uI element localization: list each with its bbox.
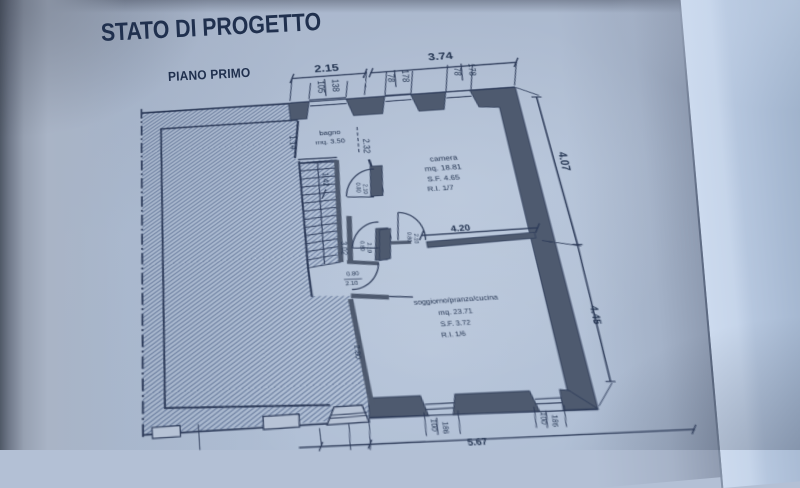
svg-text:2.32: 2.32 [361, 139, 373, 154]
svg-text:2.10: 2.10 [366, 243, 373, 254]
svg-text:100: 100 [538, 412, 548, 425]
svg-text:4.07: 4.07 [556, 152, 575, 171]
svg-text:0.80: 0.80 [354, 183, 362, 193]
svg-text:4.20: 4.20 [450, 223, 472, 234]
svg-text:mq. 18.81: mq. 18.81 [424, 164, 463, 174]
svg-text:138: 138 [330, 79, 342, 92]
svg-text:S.F. 4.65: S.F. 4.65 [427, 174, 461, 183]
svg-text:2.15: 2.15 [314, 63, 340, 75]
svg-text:mq. 23.71: mq. 23.71 [438, 308, 473, 317]
svg-text:178: 178 [466, 63, 478, 76]
svg-text:100: 100 [428, 419, 437, 432]
svg-text:S.F. 3.72: S.F. 3.72 [440, 320, 471, 329]
svg-text:1.42: 1.42 [320, 172, 330, 186]
svg-text:R.I. 1/7: R.I. 1/7 [427, 184, 455, 193]
svg-text:186: 186 [549, 414, 559, 427]
svg-text:178: 178 [400, 70, 411, 83]
svg-text:3.74: 3.74 [427, 51, 455, 63]
svg-text:4.45: 4.45 [587, 305, 604, 325]
svg-text:bagno: bagno [319, 129, 342, 137]
svg-text:5.67: 5.67 [466, 436, 488, 448]
svg-text:soggiorno/pranzo/cucina: soggiorno/pranzo/cucina [413, 294, 500, 307]
svg-text:2.10: 2.10 [345, 280, 359, 288]
svg-text:186: 186 [440, 421, 449, 434]
svg-text:1.14: 1.14 [287, 135, 299, 149]
svg-text:mq. 3.50: mq. 3.50 [315, 138, 346, 147]
svg-text:2.10: 2.10 [361, 184, 369, 194]
svg-text:0.80: 0.80 [359, 241, 366, 251]
svg-text:camera: camera [429, 155, 458, 164]
svg-text:2.80: 2.80 [352, 345, 361, 359]
svg-text:0.80: 0.80 [346, 271, 360, 279]
svg-text:0.80: 0.80 [406, 232, 413, 243]
svg-text:R.I. 1/6: R.I. 1/6 [441, 331, 467, 340]
svg-text:2.10: 2.10 [413, 234, 420, 245]
svg-text:3.02: 3.02 [339, 241, 349, 255]
